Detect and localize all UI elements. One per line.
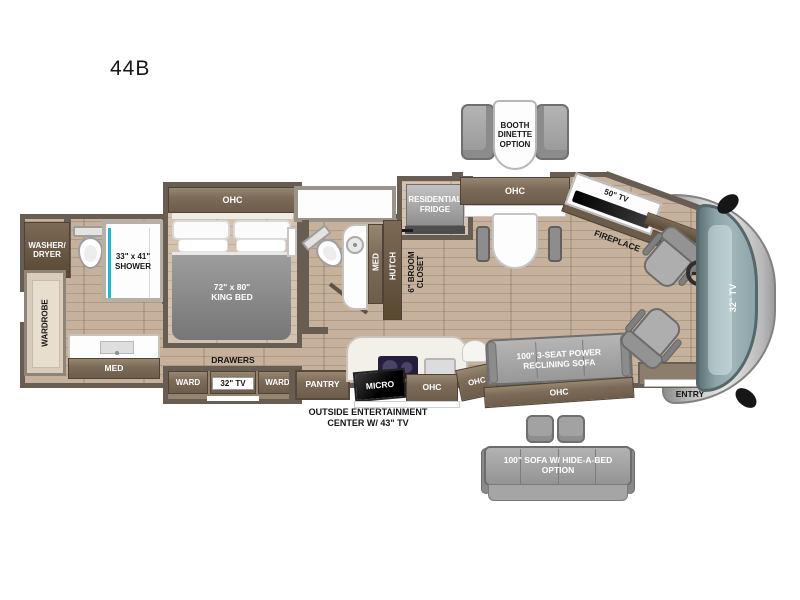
king-bed: 72" x 80" KING BED [172,220,293,343]
pantry: PANTRY [295,370,350,400]
rear-med-label: MED [105,364,124,374]
ward-left-label: WARD [176,378,200,387]
ottoman-left [526,415,554,443]
kitchen-ohc: OHC [406,374,458,402]
king-bed-label: 72" x 80" KING BED [182,282,282,302]
microwave: MICRO [353,368,407,402]
bed-ohc: OHC [168,187,297,213]
hide-a-bed-label: 100" SOFA W/ HIDE-A-BED OPTION [490,455,626,475]
booth-dinette-table: BOOTH DINETTE OPTION [493,100,537,170]
microwave-label: MICRO [365,379,394,392]
bed-ohc-label: OHC [223,195,243,205]
residential-fridge: RESIDENTIAL FRIDGE [406,184,464,226]
drawers-label: DRAWERS [198,355,268,365]
rv-floorplan: 44B BOOTH DINETTE OPTION WASHER/ DRYER 3… [0,0,800,600]
plan-title: 44B [110,56,170,81]
ward-left: WARD [168,371,208,394]
bedroom-tv-cabinet: 32" TV [210,371,256,394]
rear-med-cabinet: MED [68,358,160,379]
dinette-ohc-label: OHC [505,186,525,196]
ottoman-right [557,415,585,443]
ward-tv-slideout: WARD 32" TV WARD [163,366,302,404]
dinette-table [492,213,538,269]
hutch-label: HUTCH [388,231,397,301]
broom-closet-label: 6" BROOM CLOSET [407,229,425,315]
dinette-chair-right [548,226,562,262]
sofa-ohc-label: OHC [549,387,569,398]
closet [294,186,396,222]
ward-right-label: WARD [265,378,289,387]
washer-dryer-label: WASHER/ DRYER [28,241,65,259]
rear-vanity-counter [68,334,160,360]
pantry-label: PANTRY [306,380,340,390]
wall-midbath-stub [302,327,328,334]
bedroom-tv-label: 32" TV [220,379,245,389]
kitchen-ohc-label: OHC [423,383,442,393]
midbath-counter [342,224,368,310]
midbath-med-label: MED [371,232,380,292]
booth-seat-right [535,104,569,160]
booth-dinette-label: BOOTH DINETTE OPTION [498,121,532,150]
wardrobe-label: WARDROBE [40,283,49,363]
nightstand [287,227,297,257]
mirror-bottom [732,385,761,411]
reclining-sofa-label: 100" 3-SEAT POWER RECLINING SOFA [501,346,618,372]
booth-seat-left [461,104,495,160]
shower-label: 33" x 41" SHOWER [107,252,159,271]
dash-tv-label: 32" TV [728,268,738,328]
bed-slideout: OHC 72" x 80" KING BED [163,182,302,348]
shower: 33" x 41" SHOWER [102,220,164,302]
outside-entertainment-label: OUTSIDE ENTERTAINMENT CENTER W/ 43" TV [286,407,450,429]
fridge-label: RESIDENTIAL FRIDGE [408,195,461,214]
dinette-ohc: OHC [460,177,570,205]
dinette-chair-left [476,226,490,262]
sofa-side-table [462,340,488,362]
hide-a-bed-sofa: 100" SOFA W/ HIDE-A-BED OPTION [484,446,632,502]
booth-dinette-option: BOOTH DINETTE OPTION [461,100,569,172]
